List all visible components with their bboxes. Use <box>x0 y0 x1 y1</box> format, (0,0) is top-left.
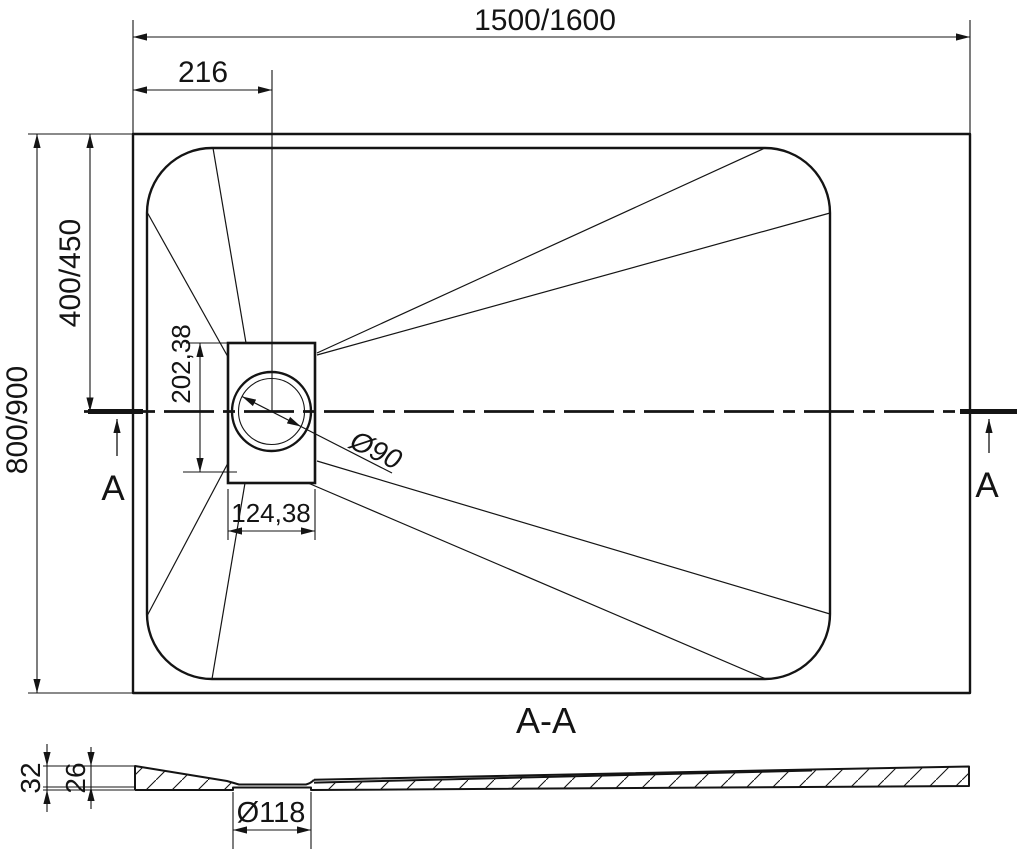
basin-depth-label: 26 <box>60 762 91 793</box>
drain-diameter-label: Ø90 <box>344 424 406 476</box>
dimension-recess-height: 202,38 <box>166 324 200 472</box>
section-title: A-A <box>516 700 576 741</box>
dimension-overall-depth: 800/900 <box>1 134 37 693</box>
dimension-drain-offset: 216 <box>133 56 272 90</box>
section-view: A-A 32 26 <box>15 700 969 849</box>
tray-outer-edge <box>133 134 970 693</box>
overall-depth-label: 800/900 <box>1 366 34 474</box>
technical-drawing-page: 1500/1600 216 800/900 400/450 202,38 124… <box>0 0 1024 851</box>
recess-width-label: 124,38 <box>231 498 311 528</box>
drain-from-top-label: 400/450 <box>54 219 87 327</box>
dimension-drain-hole: Ø118 <box>233 797 311 830</box>
top-view: 1500/1600 216 800/900 400/450 202,38 124… <box>1 4 1017 693</box>
section-letter-left: A <box>101 469 125 508</box>
slope-fold-lines <box>147 148 830 679</box>
dimension-overall-width: 1500/1600 <box>133 4 970 37</box>
overall-width-label: 1500/1600 <box>474 4 616 37</box>
dimension-basin-depth: 26 <box>60 747 91 809</box>
total-height-label: 32 <box>15 762 46 793</box>
drain-offset-label: 216 <box>178 56 228 89</box>
section-letter-right: A <box>975 466 999 505</box>
dimension-drain-from-top: 400/450 <box>54 134 90 412</box>
drain-hole-label: Ø118 <box>237 797 306 829</box>
recess-height-label: 202,38 <box>166 324 196 404</box>
basin-inner-edge <box>147 148 830 679</box>
section-marker-left: A <box>101 419 125 508</box>
dimension-recess-width: 124,38 <box>228 498 315 531</box>
section-marker-right: A <box>975 419 999 505</box>
dimension-total-height: 32 <box>15 744 47 812</box>
hatch-left-wedge <box>135 766 236 790</box>
shower-tray-drawing: 1500/1600 216 800/900 400/450 202,38 124… <box>0 0 1024 851</box>
drain-diameter-callout: Ø90 <box>242 397 407 476</box>
